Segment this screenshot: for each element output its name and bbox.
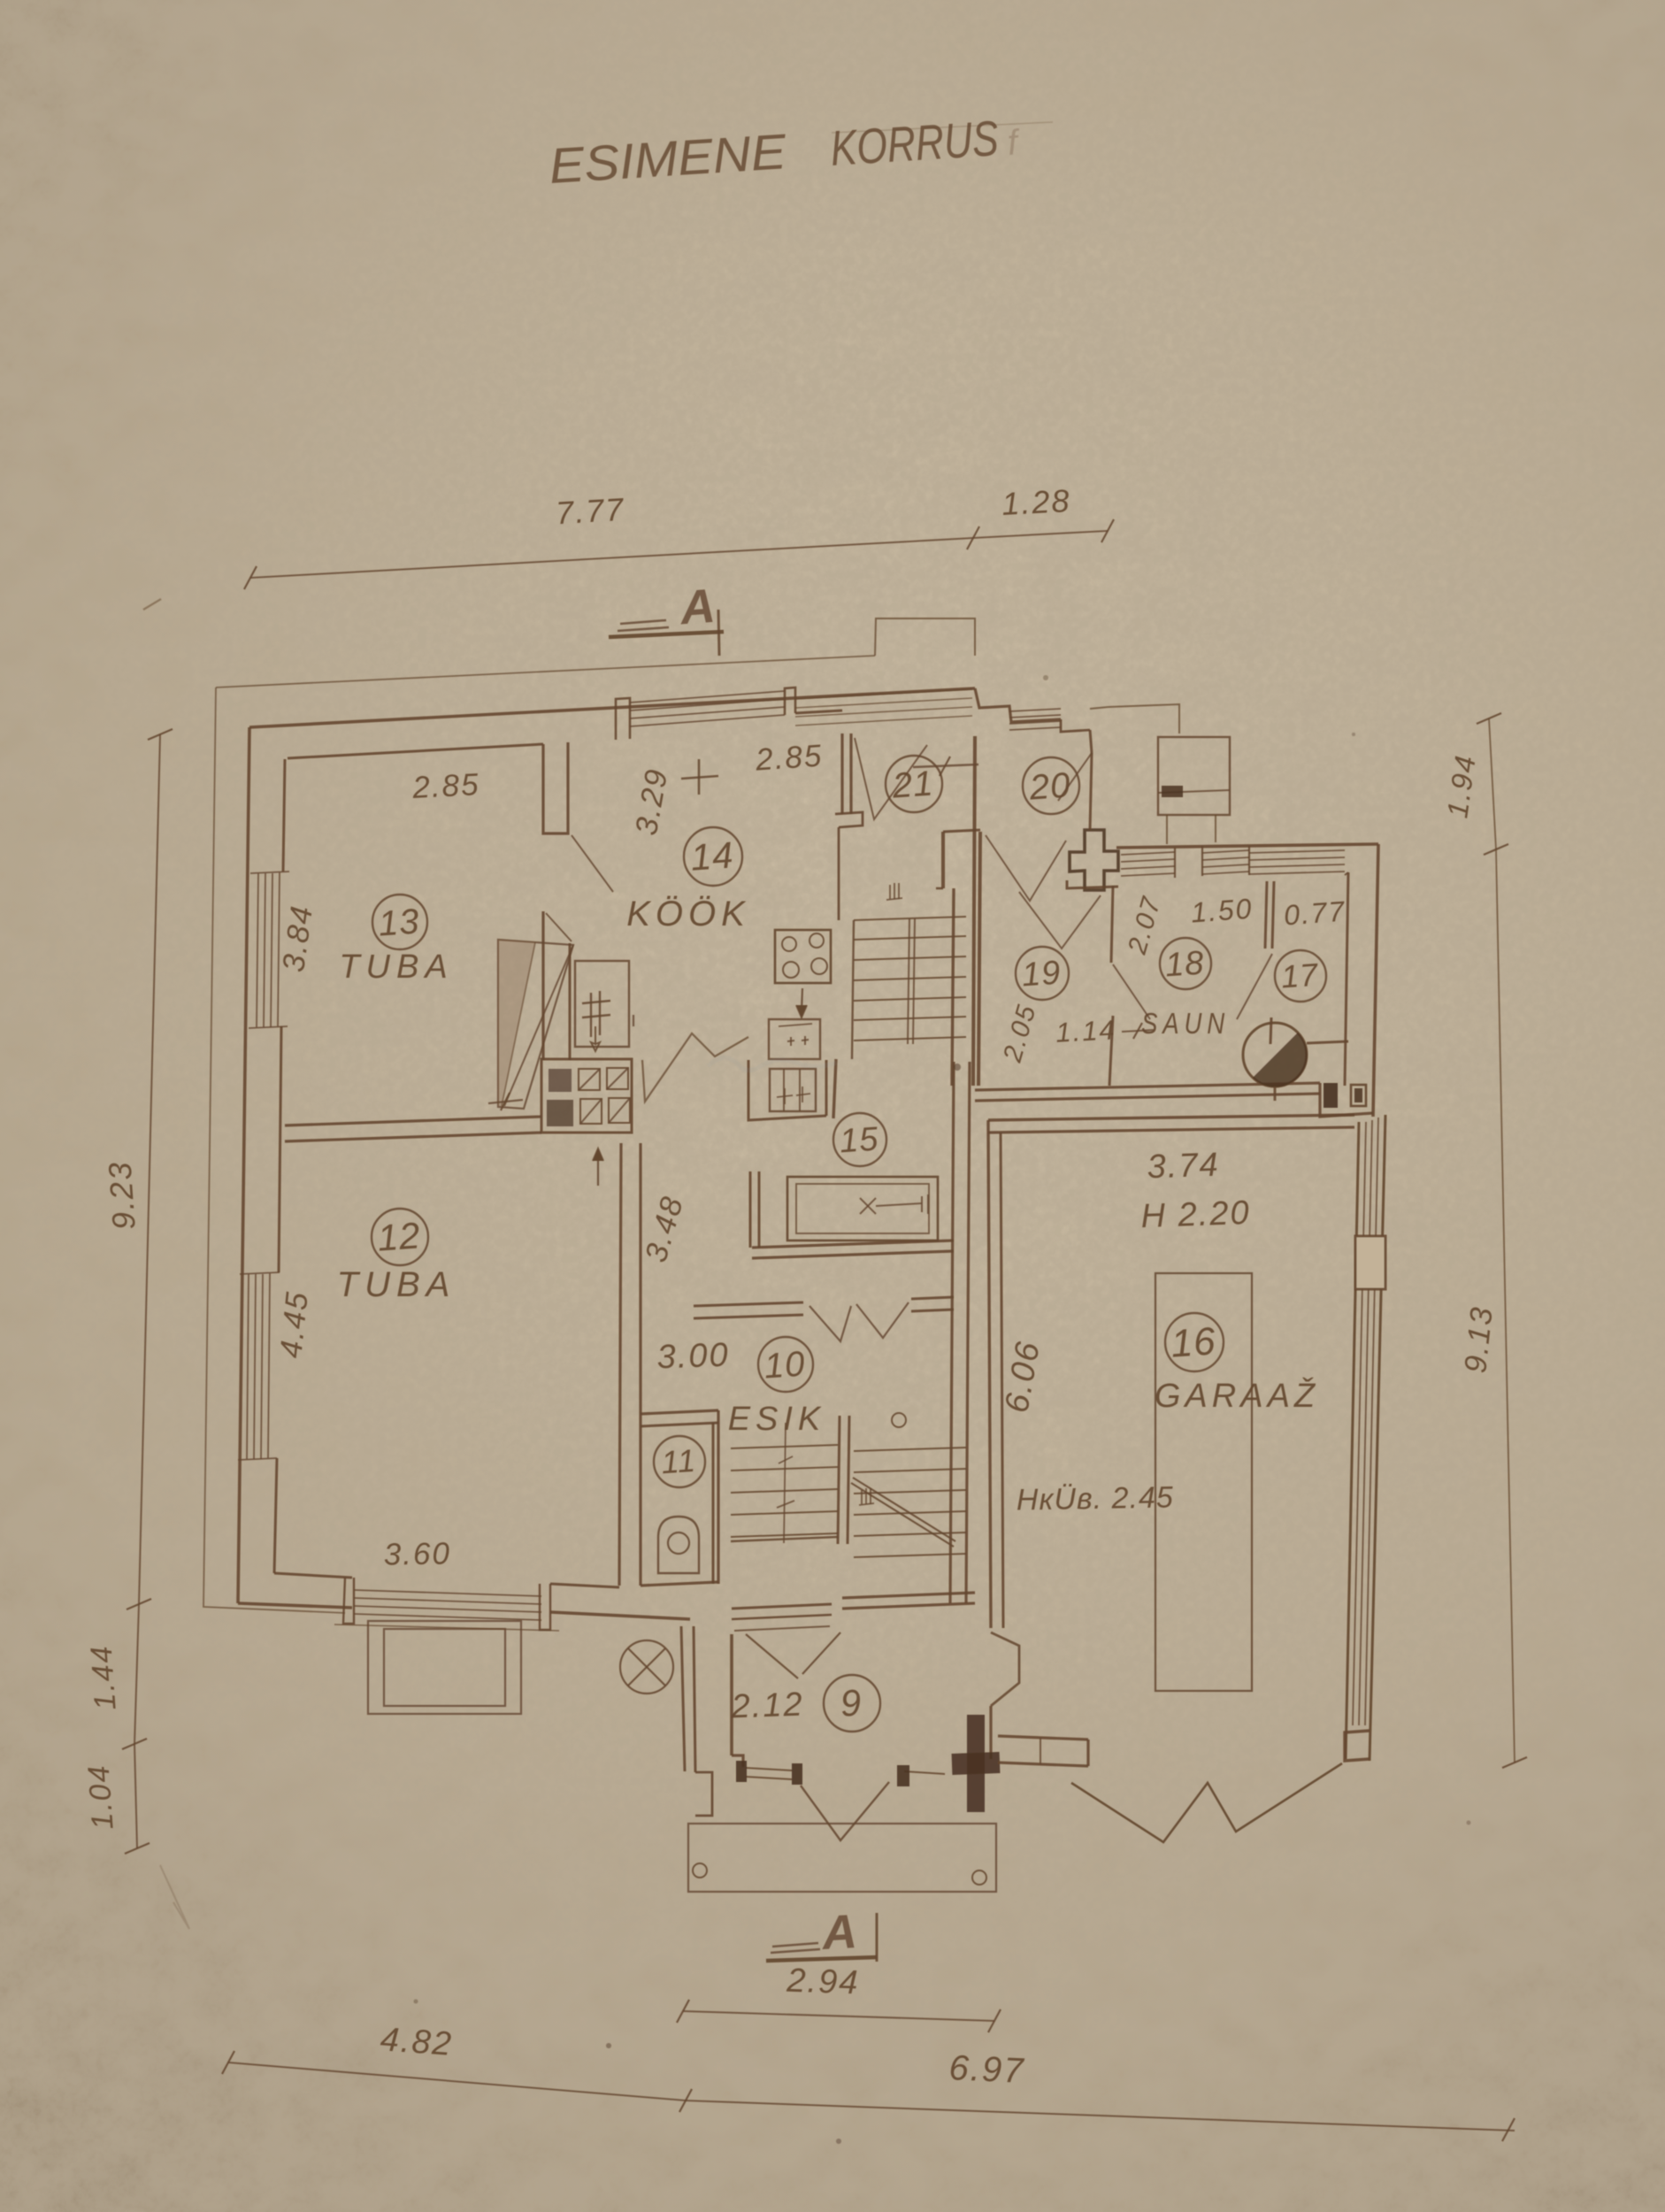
svg-text:14: 14 (689, 833, 735, 878)
svg-text:17: 17 (1280, 956, 1321, 995)
svg-text:16: 16 (1170, 1319, 1217, 1365)
svg-text:3.74: 3.74 (1147, 1147, 1220, 1187)
svg-text:20: 20 (1027, 765, 1071, 807)
svg-text:4.82: 4.82 (379, 2021, 454, 2063)
svg-text:2.85: 2.85 (754, 738, 825, 777)
svg-text:11: 11 (660, 1442, 697, 1481)
svg-text:4.45: 4.45 (273, 1289, 315, 1360)
svg-text:6.97: 6.97 (948, 2048, 1026, 2091)
svg-text:21: 21 (890, 764, 934, 805)
svg-text:1.04: 1.04 (81, 1763, 119, 1831)
svg-text:1.44: 1.44 (84, 1643, 122, 1711)
svg-text:10: 10 (763, 1344, 806, 1386)
svg-text:9.23: 9.23 (101, 1159, 142, 1231)
svg-text:GARAAŽ: GARAAŽ (1155, 1377, 1319, 1415)
svg-text:TUBA: TUBA (337, 1265, 457, 1304)
svg-text:НкÜв. 2.45: НкÜв. 2.45 (1016, 1480, 1174, 1517)
svg-text:2.94: 2.94 (786, 1962, 860, 2002)
svg-text:9: 9 (839, 1681, 863, 1724)
svg-text:12: 12 (376, 1214, 422, 1258)
svg-text:1.14: 1.14 (1055, 1014, 1116, 1048)
svg-text:2.85: 2.85 (410, 767, 480, 805)
svg-text:9.13: 9.13 (1458, 1304, 1500, 1375)
svg-text:H 2.20: H 2.20 (1140, 1194, 1251, 1235)
svg-text:3.00: 3.00 (656, 1337, 730, 1377)
svg-text:KÖÖK: KÖÖK (626, 895, 750, 933)
svg-text:1.50: 1.50 (1190, 893, 1255, 929)
svg-text:0.77: 0.77 (1283, 895, 1347, 932)
svg-text:ESIK: ESIK (728, 1401, 826, 1438)
svg-text:KORRUS: KORRUS (829, 110, 1001, 176)
svg-text:3.60: 3.60 (383, 1536, 451, 1571)
svg-text:7.77: 7.77 (555, 491, 625, 532)
svg-text:A: A (677, 580, 717, 635)
svg-text:13: 13 (377, 902, 420, 943)
svg-text:18: 18 (1164, 945, 1206, 985)
svg-text:A: A (819, 1905, 858, 1960)
svg-text:19: 19 (1021, 955, 1063, 995)
svg-text:TUBA: TUBA (339, 949, 453, 986)
svg-text:2.12: 2.12 (730, 1686, 804, 1726)
svg-text:SAUN: SAUN (1141, 1007, 1230, 1040)
svg-text:1.28: 1.28 (1001, 482, 1071, 522)
svg-text:15: 15 (839, 1121, 880, 1161)
